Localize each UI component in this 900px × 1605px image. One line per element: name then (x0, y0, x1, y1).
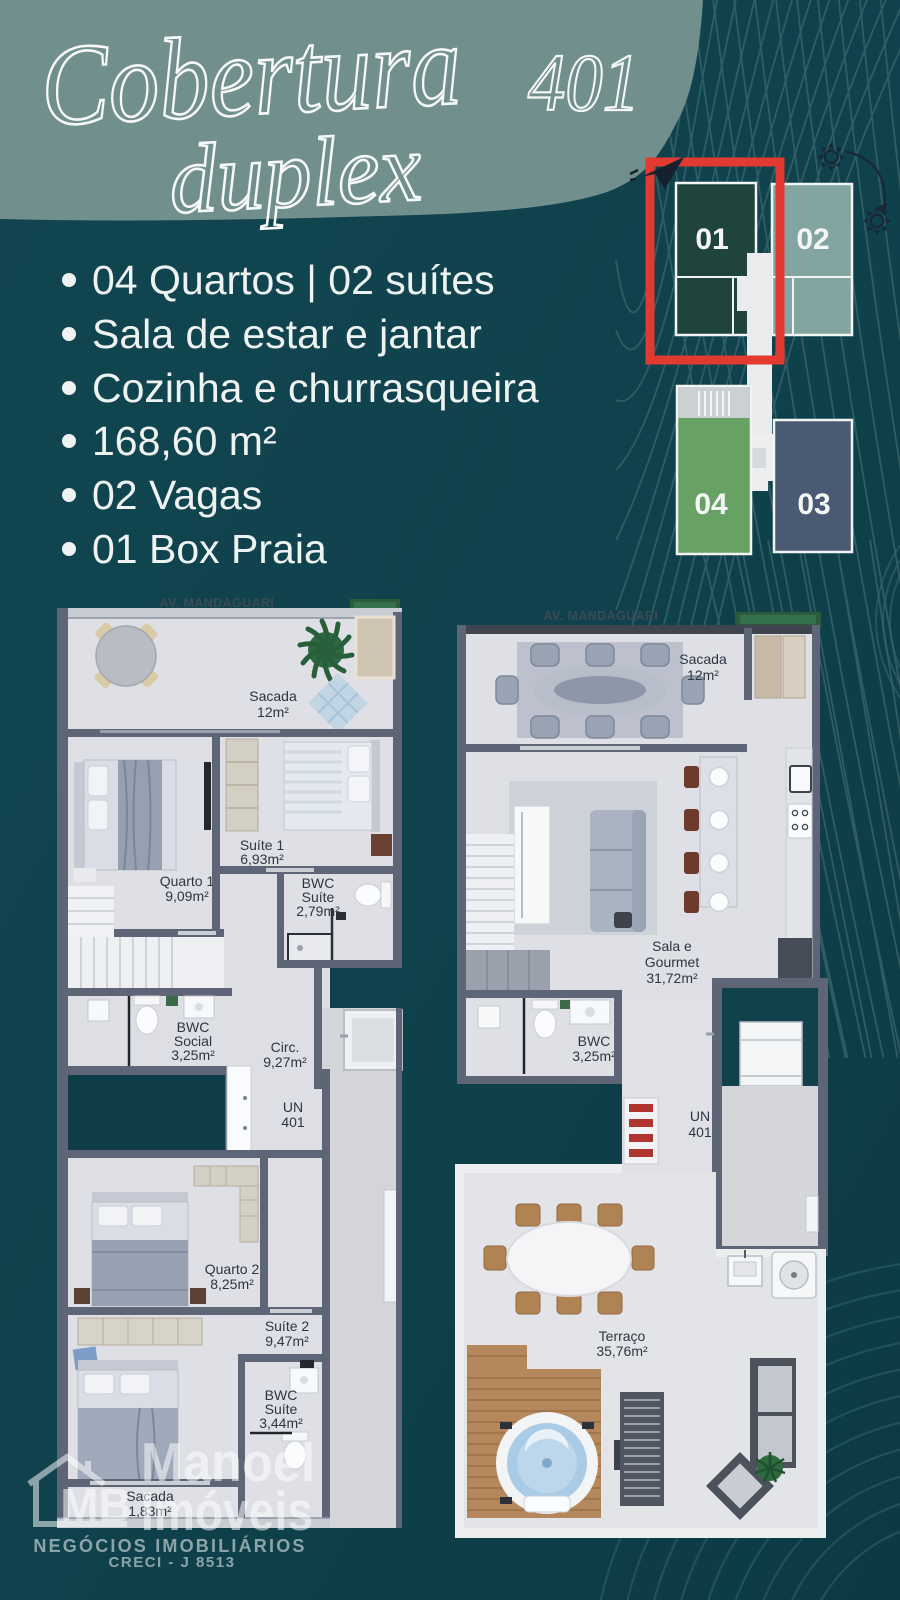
svg-text:Terraço: Terraço (599, 1328, 646, 1344)
svg-text:Imóveis: Imóveis (141, 1480, 313, 1542)
svg-text:168,60 m²: 168,60 m² (92, 418, 277, 464)
svg-text:3,25m²: 3,25m² (572, 1048, 616, 1064)
svg-text:35,76m²: 35,76m² (596, 1343, 648, 1359)
svg-text:MB: MB (60, 1479, 132, 1531)
svg-text:9,27m²: 9,27m² (263, 1054, 307, 1070)
svg-text:9,47m²: 9,47m² (265, 1333, 309, 1349)
svg-text:UN: UN (283, 1099, 303, 1115)
svg-text:Quarto 1: Quarto 1 (160, 873, 215, 889)
svg-text:duplex: duplex (167, 114, 424, 235)
svg-text:Sala e: Sala e (652, 938, 692, 954)
svg-text:Quarto 2: Quarto 2 (205, 1261, 260, 1277)
svg-text:401: 401 (528, 37, 640, 128)
svg-text:AV. MANDAGUARI: AV. MANDAGUARI (160, 596, 275, 610)
svg-text:UN: UN (690, 1108, 710, 1124)
svg-text:01: 01 (695, 223, 728, 256)
svg-text:Cozinha e churrasqueira: Cozinha e churrasqueira (92, 365, 539, 411)
svg-text:Sacada: Sacada (679, 651, 727, 667)
svg-text:Suíte 2: Suíte 2 (265, 1318, 310, 1334)
svg-text:6,93m²: 6,93m² (240, 851, 284, 867)
svg-text:02 Vagas: 02 Vagas (92, 472, 262, 518)
svg-text:401: 401 (281, 1114, 305, 1130)
svg-text:8,25m²: 8,25m² (210, 1276, 254, 1292)
svg-text:31,72m²: 31,72m² (646, 970, 698, 986)
svg-text:12m²: 12m² (257, 704, 289, 720)
svg-text:401: 401 (688, 1124, 712, 1140)
svg-text:Circ.: Circ. (271, 1039, 300, 1055)
svg-text:CRECI - J 8513: CRECI - J 8513 (109, 1554, 236, 1571)
svg-text:AV. MANDAGUARI: AV. MANDAGUARI (544, 609, 659, 623)
svg-text:BWC: BWC (578, 1033, 611, 1049)
svg-text:01 Box Praia: 01 Box Praia (92, 526, 327, 572)
svg-text:Gourmet: Gourmet (645, 954, 700, 970)
svg-text:Sacada: Sacada (249, 688, 297, 704)
svg-text:2,79m²: 2,79m² (296, 903, 340, 919)
svg-text:04 Quartos | 02 suítes: 04 Quartos | 02 suítes (92, 257, 495, 303)
svg-text:3,25m²: 3,25m² (171, 1047, 215, 1063)
svg-text:02: 02 (796, 223, 829, 256)
svg-text:9,09m²: 9,09m² (165, 888, 209, 904)
svg-text:03: 03 (797, 488, 830, 521)
svg-text:3,44m²: 3,44m² (259, 1415, 303, 1431)
svg-text:04: 04 (694, 488, 728, 521)
svg-text:Sala de estar e jantar: Sala de estar e jantar (92, 311, 482, 357)
svg-text:NEGÓCIOS IMOBILIÁRIOS: NEGÓCIOS IMOBILIÁRIOS (33, 1535, 306, 1556)
svg-text:12m²: 12m² (687, 667, 719, 683)
